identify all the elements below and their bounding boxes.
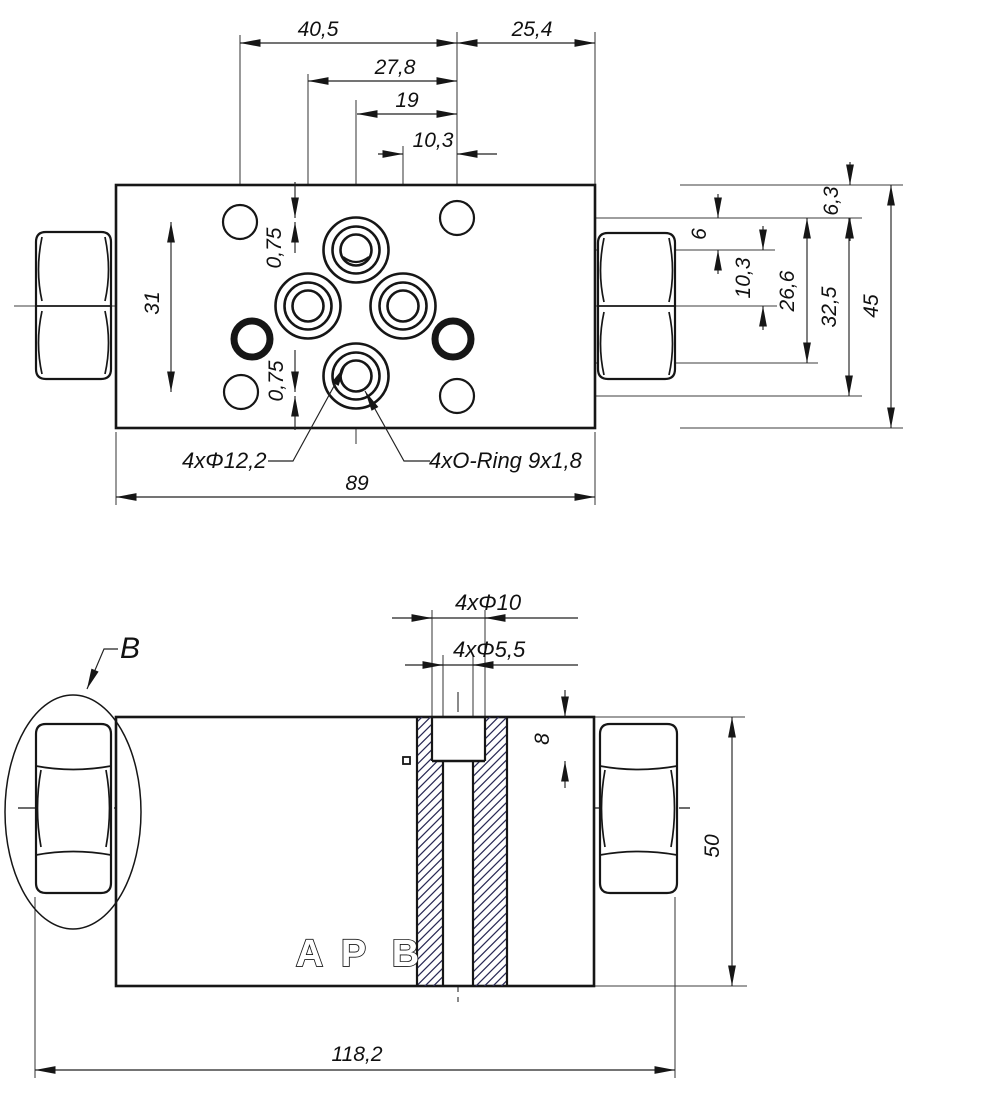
dim-4xd10: 4xΦ10 xyxy=(455,590,522,615)
dim-10-3-right: 10,3 xyxy=(732,257,755,298)
dim-50: 50 xyxy=(701,834,724,858)
detail-b-label: B xyxy=(120,632,140,665)
leader-detail-b xyxy=(87,649,118,689)
dim-6-3: 6,3 xyxy=(820,186,843,216)
drawing-canvas: 40,5 25,4 27,8 19 10,3 89 31 0,75 0,75 6… xyxy=(0,0,1000,1116)
dim-27-8: 27,8 xyxy=(374,56,416,79)
dim-4xd5-5: 4xΦ5,5 xyxy=(453,637,526,662)
dim-8: 8 xyxy=(531,733,554,745)
dim-0-75-upper: 0,75 xyxy=(263,227,286,268)
label-oring: 4xO-Ring 9x1,8 xyxy=(429,448,583,473)
top-view xyxy=(14,32,903,505)
port-letter-b: B xyxy=(392,933,420,975)
dim-6: 6 xyxy=(688,228,711,240)
port-letter-a: A xyxy=(296,933,324,975)
port-letter-p: P xyxy=(341,933,367,975)
dim-118-2: 118,2 xyxy=(332,1043,383,1066)
bottom-view: A P B xyxy=(5,610,747,1078)
technical-drawing-svg: 40,5 25,4 27,8 19 10,3 89 31 0,75 0,75 6… xyxy=(0,0,1000,1116)
dim-25-4: 25,4 xyxy=(511,18,553,41)
hex-nut-bottom-left xyxy=(36,724,111,893)
dim-0-75-lower: 0,75 xyxy=(265,360,288,401)
surface-mark xyxy=(403,757,410,764)
port-letters: A P B xyxy=(296,933,420,975)
dim-45: 45 xyxy=(860,294,883,318)
dim-10-3-top: 10,3 xyxy=(413,129,454,152)
hex-nut-top-right xyxy=(598,233,675,379)
dim-40-5: 40,5 xyxy=(298,18,339,41)
dim-31: 31 xyxy=(141,291,164,314)
dim-89: 89 xyxy=(345,472,369,495)
dim-26-6: 26,6 xyxy=(776,270,799,312)
hex-nut-bottom-right xyxy=(600,724,677,893)
dim-32-5: 32,5 xyxy=(818,286,841,327)
hex-nut-top-left xyxy=(36,232,111,379)
label-holes: 4xΦ12,2 xyxy=(182,448,266,473)
dim-19: 19 xyxy=(395,89,419,112)
